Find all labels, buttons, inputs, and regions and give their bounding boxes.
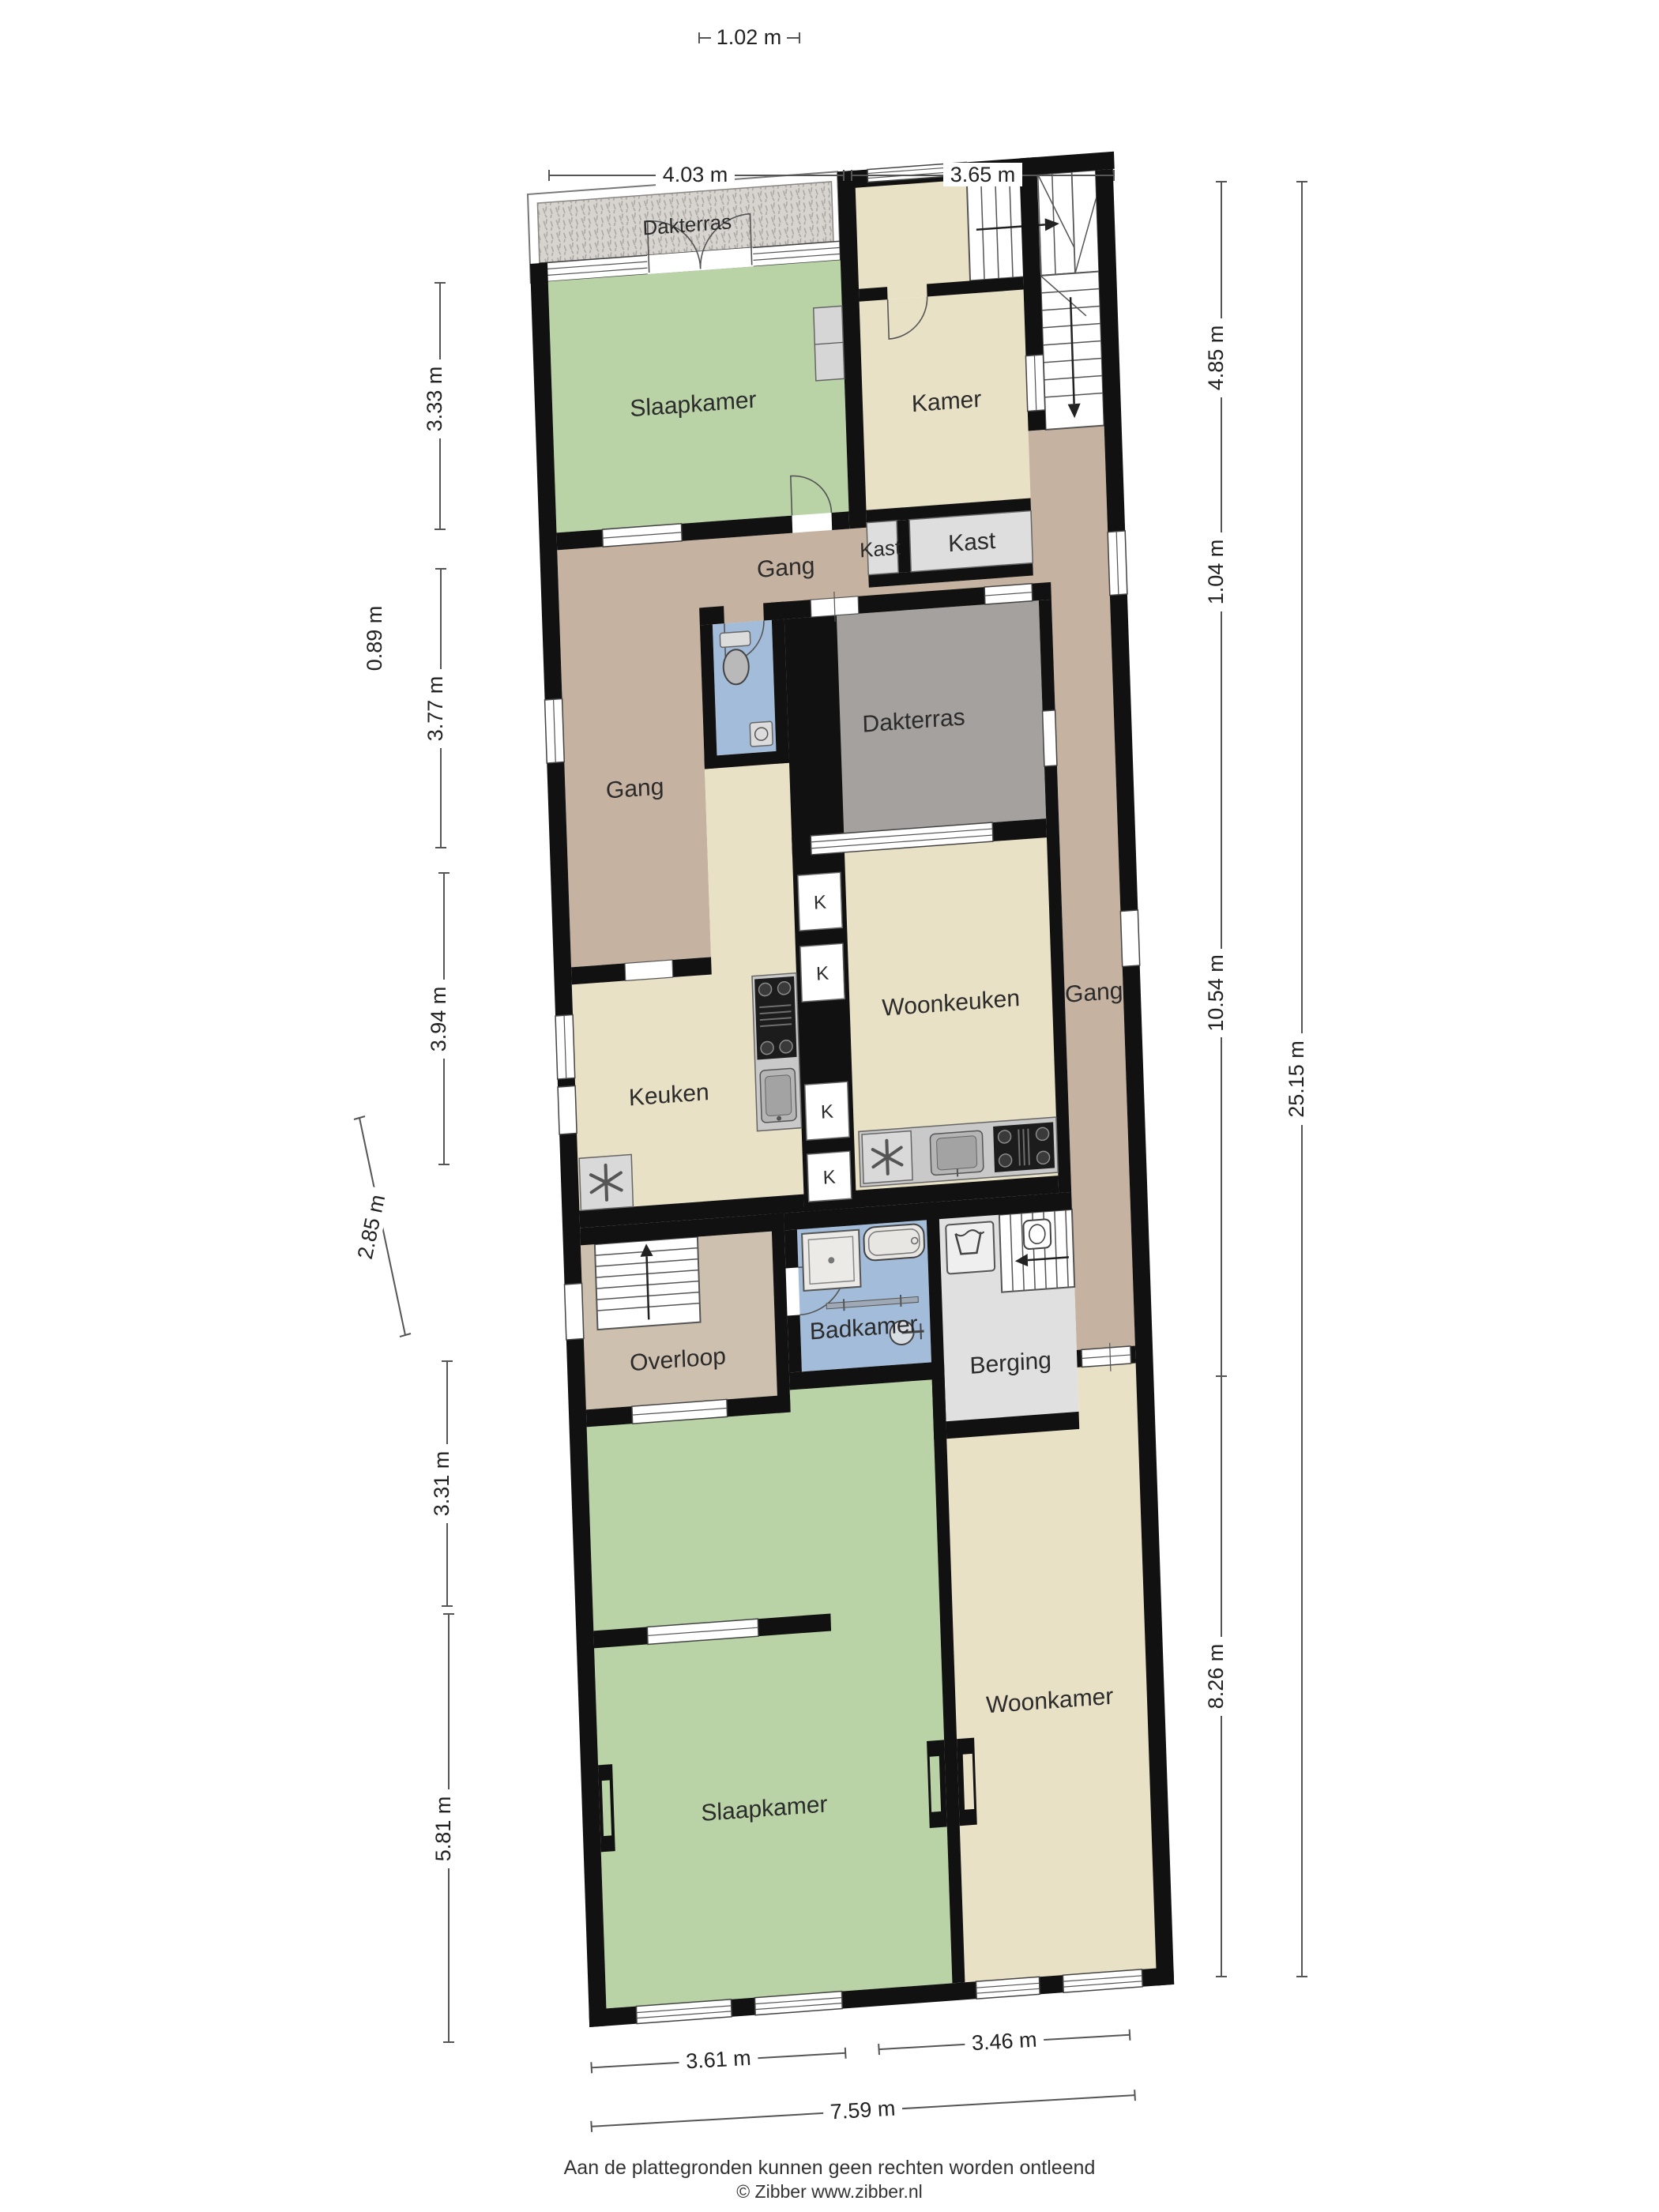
dim-left-285: 2.85 m xyxy=(352,1116,411,1337)
room-slaapkamer-bottom xyxy=(586,1379,953,2008)
floorplan-canvas: K K K K xyxy=(0,0,1659,2212)
dim-right-outer: 25.15 m xyxy=(1285,182,1308,1977)
stove2-icon xyxy=(993,1122,1055,1172)
stove-icon xyxy=(754,976,796,1060)
kast-large-label: Kast xyxy=(948,528,997,557)
gang-right-label: Gang xyxy=(1065,978,1123,1008)
footer-copyright: © Zibber www.zibber.nl xyxy=(736,2181,923,2202)
dim-label-102: 1.02 m xyxy=(717,25,782,49)
footer: Aan de plattegronden kunnen geen rechten… xyxy=(564,2157,1096,2202)
dim-right-inner: 4.85 m 1.04 m 10.54 m 8.26 m xyxy=(1204,182,1228,1977)
dim-label-089: 0.89 m xyxy=(363,606,386,671)
stairs-right-icon xyxy=(1040,272,1104,430)
dim-label-285: 2.85 m xyxy=(353,1193,390,1262)
dim-bottom-346: 3.46 m xyxy=(878,2022,1130,2060)
sink2-icon xyxy=(930,1130,984,1179)
slaapkamer-closet-icon xyxy=(814,306,845,381)
gang-top-label: Gang xyxy=(756,553,814,583)
dim-left-581: 5.81 m xyxy=(431,1614,455,2042)
dim-label-1054: 10.54 m xyxy=(1204,954,1228,1032)
kast-small-label: Kast xyxy=(860,536,902,562)
washing-machine-icon xyxy=(946,1221,995,1273)
dim-label-485: 4.85 m xyxy=(1204,325,1228,391)
closet-k3-label: K xyxy=(821,1101,834,1123)
dim-left-089: 0.89 m xyxy=(363,601,386,675)
dim-label-403: 4.03 m xyxy=(663,163,728,186)
shower-icon xyxy=(802,1230,860,1291)
fan-keuken-icon xyxy=(579,1154,633,1210)
stairs-berging-icon xyxy=(999,1209,1074,1292)
dim-label-581: 5.81 m xyxy=(431,1796,455,1862)
fan-woonkeuken-icon xyxy=(862,1131,912,1184)
dim-label-826: 8.26 m xyxy=(1204,1644,1228,1710)
dim-label-346: 3.46 m xyxy=(971,2028,1037,2056)
dim-label-104: 1.04 m xyxy=(1204,540,1228,605)
dim-label-759: 7.59 m xyxy=(829,2097,896,2124)
stairs-overloop-icon xyxy=(595,1237,701,1330)
sink-icon xyxy=(760,1068,796,1123)
closet-k1-label: K xyxy=(814,892,827,914)
dim-left-377: 3.77 m xyxy=(423,569,447,848)
gang-left-label: Gang xyxy=(605,773,664,803)
dim-left-331: 3.31 m xyxy=(430,1361,453,1606)
dim-label-394: 3.94 m xyxy=(427,987,450,1052)
dim-left-333: 3.33 m xyxy=(423,283,446,529)
dim-bottom-759: 7.59 m xyxy=(591,2082,1136,2138)
building: K K K K xyxy=(528,152,1176,2027)
stairs-landing-top-right xyxy=(1072,171,1099,273)
dim-label-2515: 25.15 m xyxy=(1285,1040,1308,1118)
bathtub-icon xyxy=(863,1224,924,1262)
dim-label-361: 3.61 m xyxy=(685,2046,751,2074)
dim-label-331: 3.31 m xyxy=(430,1451,453,1517)
closet-k4-label: K xyxy=(822,1167,836,1189)
dim-label-377: 3.77 m xyxy=(423,676,447,742)
keuken-counter xyxy=(752,973,802,1131)
kamer-label: Kamer xyxy=(911,386,981,417)
dim-top-102: 1.02 m xyxy=(699,25,799,49)
dim-label-365: 3.65 m xyxy=(950,163,1016,186)
small-wc-icon xyxy=(1023,1219,1051,1249)
room-woonkamer xyxy=(945,1364,1157,1983)
dim-left-394: 3.94 m xyxy=(427,873,450,1164)
closet-k2-label: K xyxy=(816,963,829,985)
dim-label-333: 3.33 m xyxy=(423,367,446,432)
footer-disclaimer: Aan de plattegronden kunnen geen rechten… xyxy=(564,2157,1096,2179)
dim-bottom-361: 3.61 m xyxy=(591,2041,846,2078)
